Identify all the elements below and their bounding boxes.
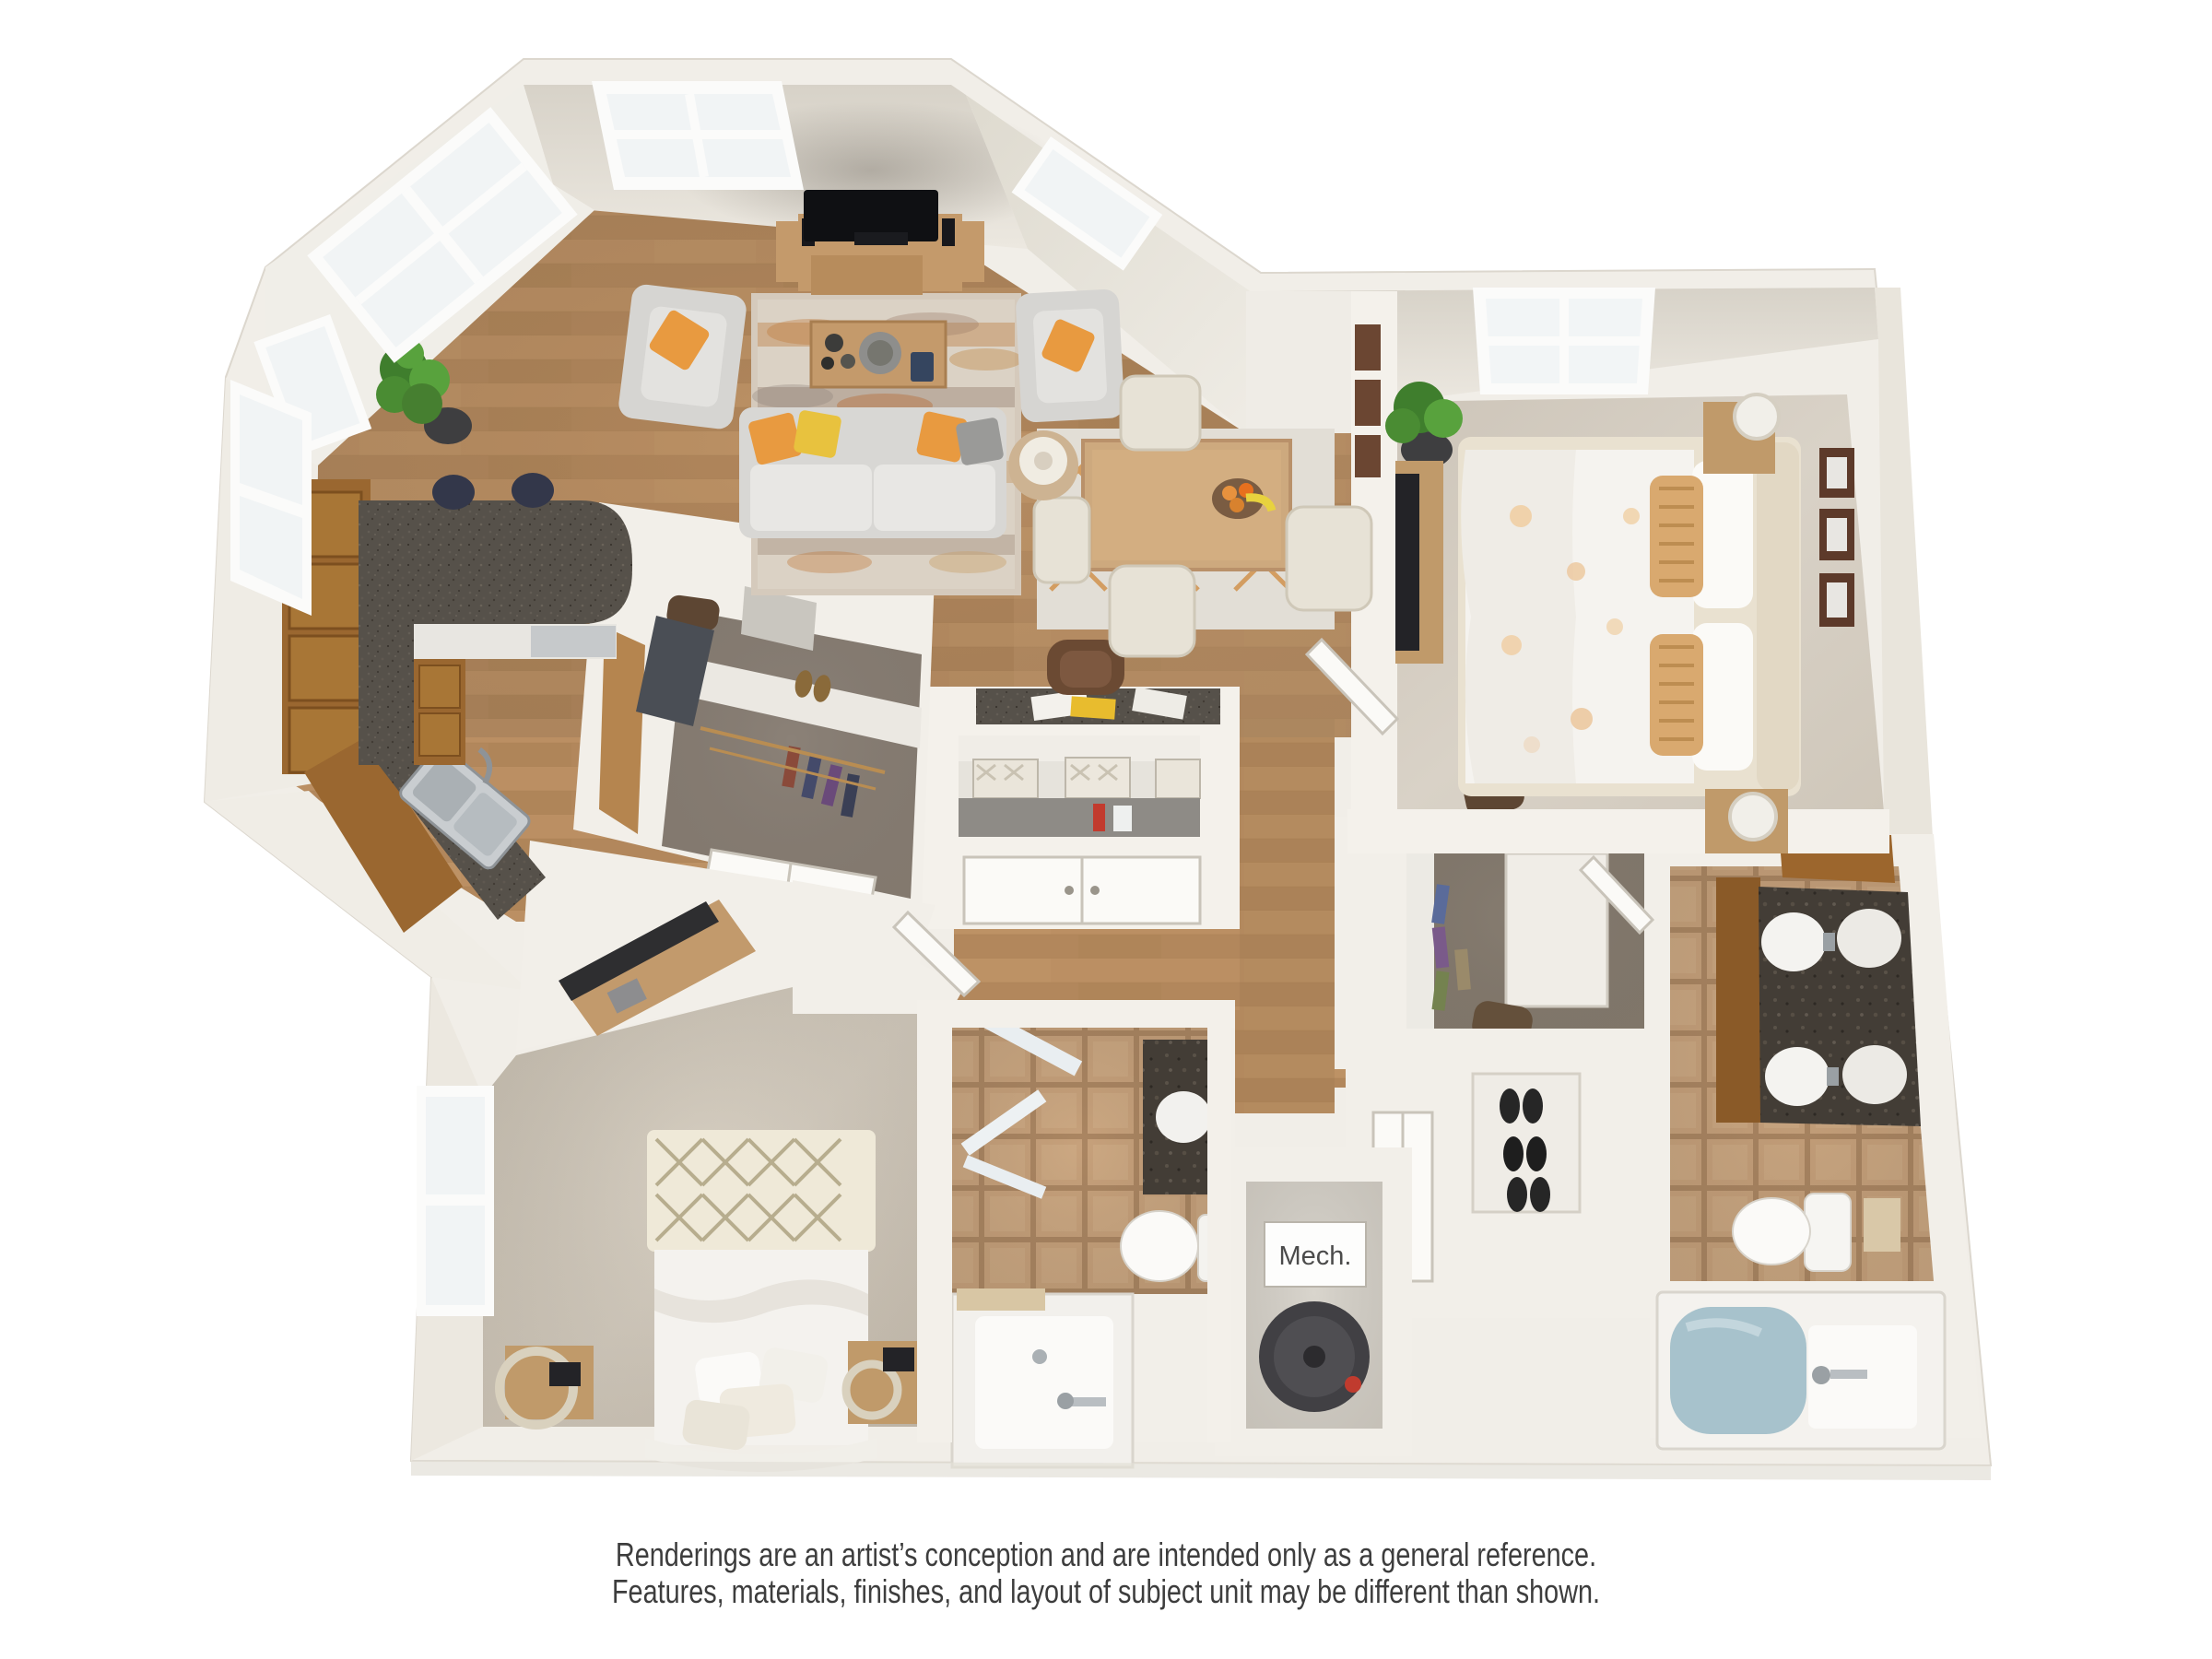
svg-text:Mech.: Mech. <box>1279 1241 1352 1271</box>
